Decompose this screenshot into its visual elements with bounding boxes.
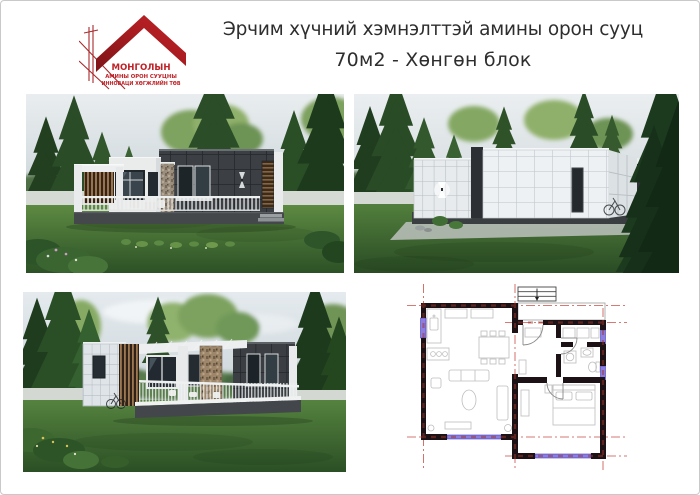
terrace-window-b [188,354,200,386]
logo-line3: ИННОВАЦИ ХӨГЖЛИЙН ТӨВ [101,79,180,87]
page-subtitle: 70м2 - Хөнгөн блок [165,49,700,71]
firewood-niche [262,161,274,208]
boundary-wall [354,192,416,206]
floor-plan-image [397,282,637,474]
render-side-view-image [23,292,346,472]
terrace-railing [82,196,260,211]
brochure-page: МОНГОЛЫН АМИНЫ ОРОН СУУЦНЫ ИННОВАЦИ ХӨГЖ… [0,0,700,495]
house-base [74,212,284,224]
dark-slot [471,147,483,218]
small-window [93,356,105,378]
wall-lamp-icon [434,182,450,198]
header: Эрчим хүчний хэмнэлттэй амины орон сууц … [165,17,700,71]
logo-line2: АМИНЫ ОРОН СУУЦНЫ [105,74,177,80]
entry-steps [518,287,556,301]
render-front-view-image [26,94,344,273]
door-window [148,172,158,198]
house-rear [412,147,664,224]
render-rear-view-image [354,94,679,273]
door-swings [523,325,577,399]
logo-line1: МОНГОЛЫН [111,63,170,73]
page-title: Эрчим хүчний хэмнэлттэй амины орон сууц [165,17,700,43]
wood-slat-wall [119,344,139,406]
right-cube [483,150,609,218]
house-side [83,339,301,418]
rear-window [572,168,583,212]
